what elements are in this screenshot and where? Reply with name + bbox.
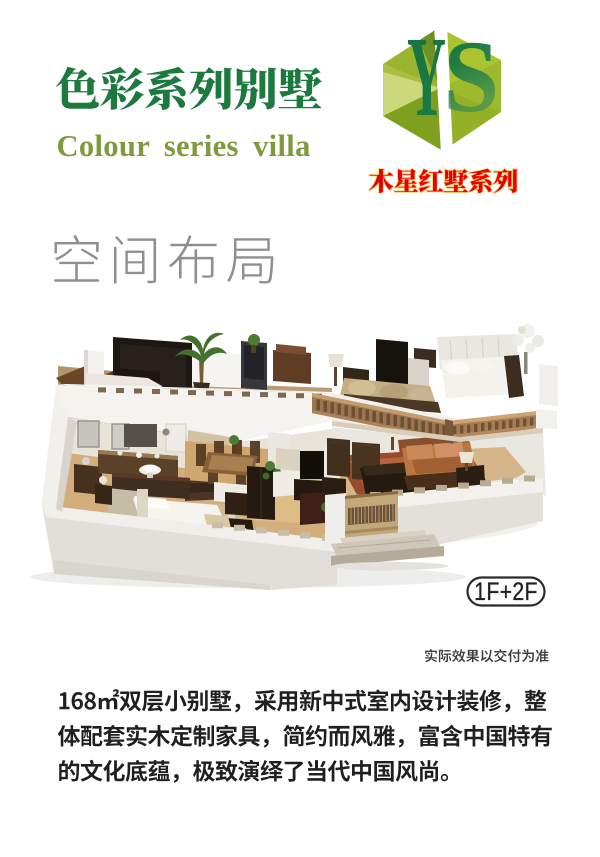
svg-text:Y: Y xyxy=(407,14,446,141)
svg-text:S: S xyxy=(443,19,499,133)
svg-text:1F+2F: 1F+2F xyxy=(474,577,538,605)
svg-text:Colour series villa: Colour series villa xyxy=(57,129,311,163)
